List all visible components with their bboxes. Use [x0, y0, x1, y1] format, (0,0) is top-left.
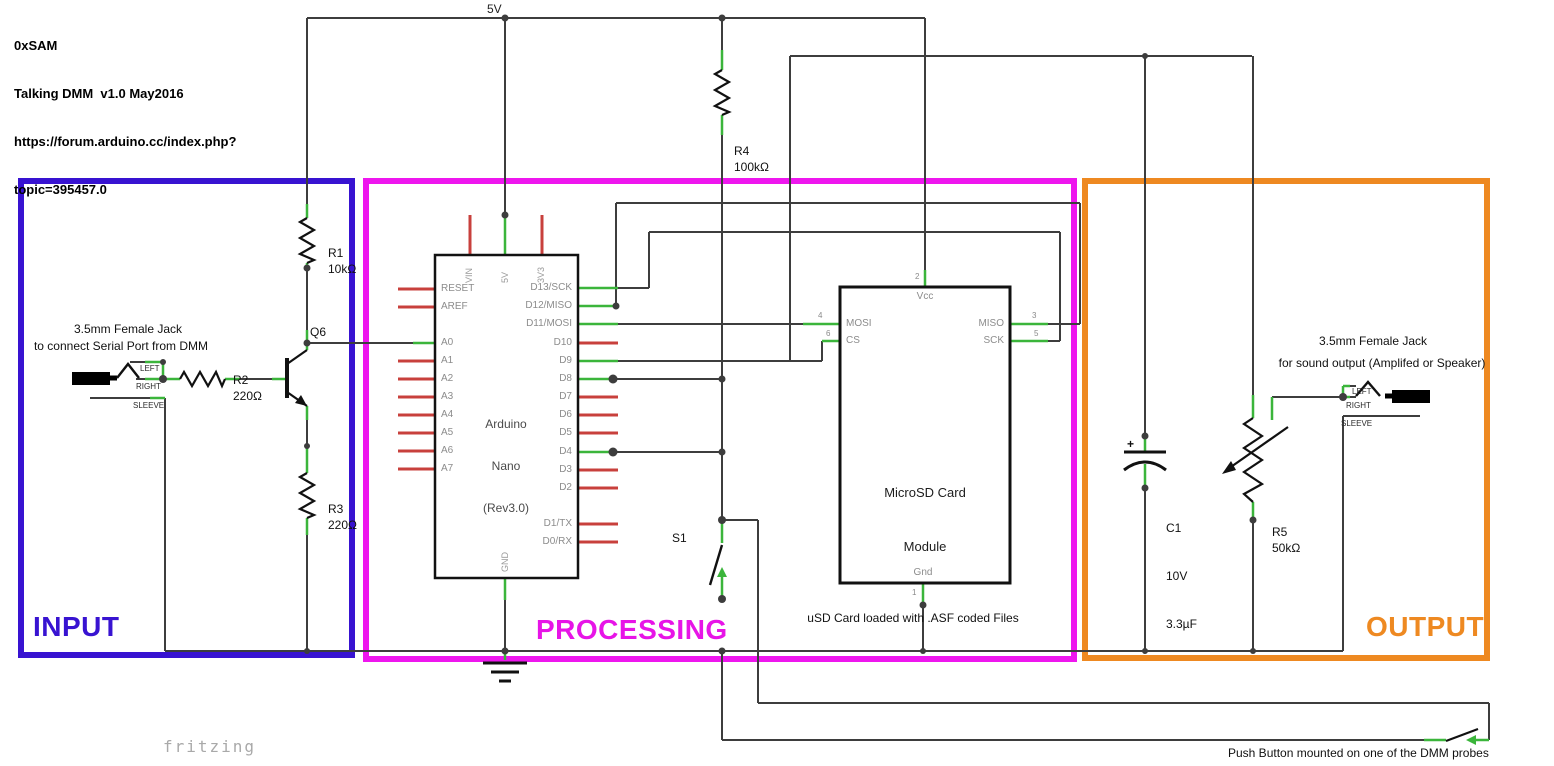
pin-label: D6 — [559, 409, 572, 421]
arduino-pin-label-3v3: 3V3 — [536, 267, 546, 283]
output-section-label: OUTPUT — [1366, 611, 1484, 643]
pin-label: D11/MOSI — [526, 318, 572, 330]
resistor-r1-label: R110kΩ — [328, 213, 356, 309]
output-jack-pin-left: LEFT — [1352, 387, 1372, 396]
sd-pin-number: 5 — [1034, 329, 1038, 338]
resistor-r3-symbol — [300, 473, 314, 518]
potentiometer-r5-wiper-arrow — [1222, 427, 1288, 474]
output-jack-title: 3.5mm Female Jack — [1319, 334, 1427, 348]
title-line: 0xSAM — [14, 38, 236, 54]
resistor-r4-symbol — [715, 70, 729, 115]
input-jack-pin-left: LEFT — [140, 364, 160, 373]
wires-layer — [90, 18, 1489, 740]
pin-label: D12/MISO — [525, 300, 572, 312]
title-line: Talking DMM v1.0 May2016 — [14, 86, 236, 102]
schematic-page: 0xSAM Talking DMM v1.0 May2016 https://f… — [0, 0, 1554, 766]
pin-label: A5 — [441, 427, 453, 439]
pin-label: D0/RX — [543, 536, 572, 548]
arduino-pin-label-vin: VIN — [464, 268, 474, 283]
output-jack-pin-right: RIGHT — [1346, 401, 1371, 410]
pin-label: A4 — [441, 409, 453, 421]
input-section-label: INPUT — [33, 611, 120, 643]
title-block: 0xSAM Talking DMM v1.0 May2016 https://f… — [14, 6, 236, 230]
pin-label: AREF — [441, 301, 468, 313]
sd-pin-number: 6 — [826, 329, 830, 338]
resistor-r1-symbol — [300, 218, 314, 263]
pin-label: A1 — [441, 355, 453, 367]
pin-label: A6 — [441, 445, 453, 457]
sd-pin-label-sck: SCK — [983, 335, 1004, 347]
sd-pin-number: 3 — [1032, 311, 1036, 320]
potentiometer-r5-symbol — [1244, 418, 1262, 502]
pin-label: D7 — [559, 391, 572, 403]
sd-pin-number: 2 — [915, 272, 919, 281]
pin-label: D2 — [559, 482, 572, 494]
pin-label: D4 — [559, 446, 572, 458]
input-jack-pin-sleeve: SLEEVE — [133, 401, 164, 410]
pin-label: D8 — [559, 373, 572, 385]
output-jack-subtitle: for sound output (Amplifed or Speaker) — [1279, 356, 1486, 370]
title-line: topic=395457.0 — [14, 182, 236, 198]
sd-pin-label-miso: MISO — [978, 318, 1004, 330]
pin-label: D10 — [554, 337, 572, 349]
pin-label: A3 — [441, 391, 453, 403]
switch-s1-label: S1 — [672, 530, 687, 546]
fritzing-watermark: fritzing — [163, 737, 256, 756]
resistor-r2-label: R2220Ω — [233, 340, 262, 436]
sd-note: uSD Card loaded with .ASF coded Files — [807, 611, 1018, 625]
title-line: https://forum.arduino.cc/index.php? — [14, 134, 236, 150]
output-jack-pin-sleeve: SLEEVE — [1341, 419, 1372, 428]
connected-pins-layer — [145, 50, 1489, 740]
resistor-r2-symbol — [180, 372, 225, 386]
input-jack-subtitle: to connect Serial Port from DMM — [34, 339, 208, 353]
sd-pin-label-vcc: Vcc — [917, 291, 934, 303]
resistor-r3-label: R3220Ω — [328, 469, 357, 565]
push-button-note: Push Button mounted on one of the DMM pr… — [1228, 746, 1489, 760]
capacitor-plus-sign: + — [1127, 436, 1134, 452]
processing-section-label: PROCESSING — [536, 614, 728, 646]
rail-5v-label: 5V — [487, 2, 502, 16]
arduino-pin-label-5v: 5V — [500, 272, 510, 283]
sd-pin-number: 4 — [818, 311, 822, 320]
pin-label: D5 — [559, 427, 572, 439]
arduino-pin-label-gnd: GND — [500, 552, 510, 572]
sd-pin-label-cs: CS — [846, 335, 860, 347]
sd-pin-number: 1 — [912, 588, 916, 597]
capacitor-c1-label: C1 10V 3.3µF — [1166, 488, 1197, 664]
arduino-title: Arduino Nano (Rev3.0) — [483, 389, 529, 543]
pin-label: D1/TX — [544, 518, 572, 530]
sd-pin-label-mosi: MOSI — [846, 318, 872, 330]
ground-symbol — [483, 663, 527, 681]
transistor-q6-label: Q6 — [310, 324, 326, 340]
potentiometer-r5-label: R550kΩ — [1272, 492, 1300, 588]
transistor-q6-symbol — [287, 350, 307, 406]
pin-label: D3 — [559, 464, 572, 476]
input-jack-title: 3.5mm Female Jack — [74, 322, 182, 336]
resistor-r4-label: R4100kΩ — [734, 111, 769, 207]
sd-pin-label-gnd: Gnd — [914, 567, 933, 579]
pin-label: D13/SCK — [530, 282, 572, 294]
pin-label: A0 — [441, 337, 453, 349]
pin-label: A7 — [441, 463, 453, 475]
push-button-symbol — [1446, 729, 1478, 745]
pin-label: A2 — [441, 373, 453, 385]
input-jack-pin-right: RIGHT — [136, 382, 161, 391]
pin-label: RESET — [441, 283, 474, 295]
input-jack-symbol — [72, 364, 139, 385]
pin-label: D9 — [559, 355, 572, 367]
switch-s1-symbol — [710, 545, 727, 585]
